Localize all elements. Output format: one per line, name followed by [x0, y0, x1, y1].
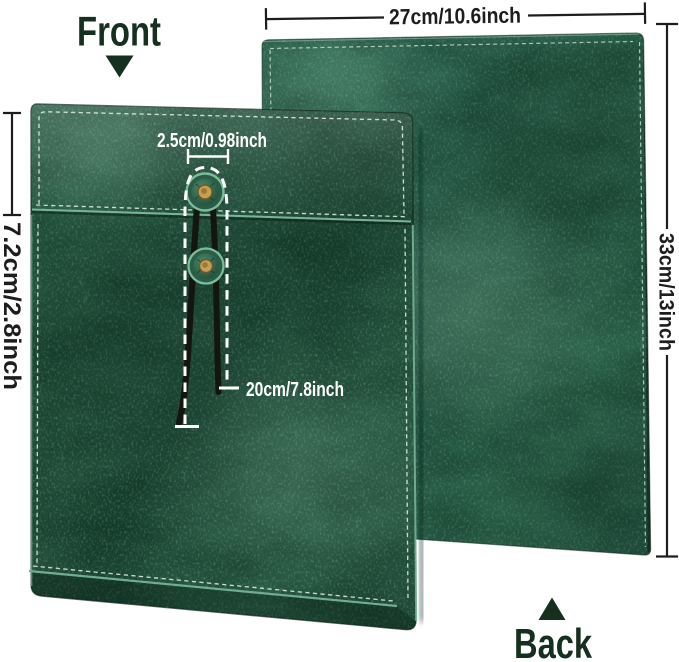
width-dimension-label: 27cm/10.6inch	[389, 3, 521, 30]
front-envelope	[0, 70, 480, 630]
product-dimension-image: 2.5cm/0.98inch 20cm/7.8inch 27cm/10.6inc…	[0, 0, 679, 662]
front-label: Front	[77, 8, 161, 55]
button-top	[187, 174, 224, 211]
flap	[31, 104, 414, 222]
product-diagram: 2.5cm/0.98inch 20cm/7.8inch 27cm/10.6inc…	[0, 0, 679, 662]
back-label: Back	[514, 620, 592, 662]
height-dimension-label: 33cm/13inch	[655, 233, 678, 351]
button-dimension-label: 2.5cm/0.98inch	[157, 130, 267, 152]
string-dimension-label: 20cm/7.8inch	[246, 379, 344, 401]
button-bottom	[189, 249, 224, 284]
flap-dimension-label: 7.2cm/2.8inch	[0, 222, 25, 390]
front-edge-shadow	[419, 130, 423, 622]
